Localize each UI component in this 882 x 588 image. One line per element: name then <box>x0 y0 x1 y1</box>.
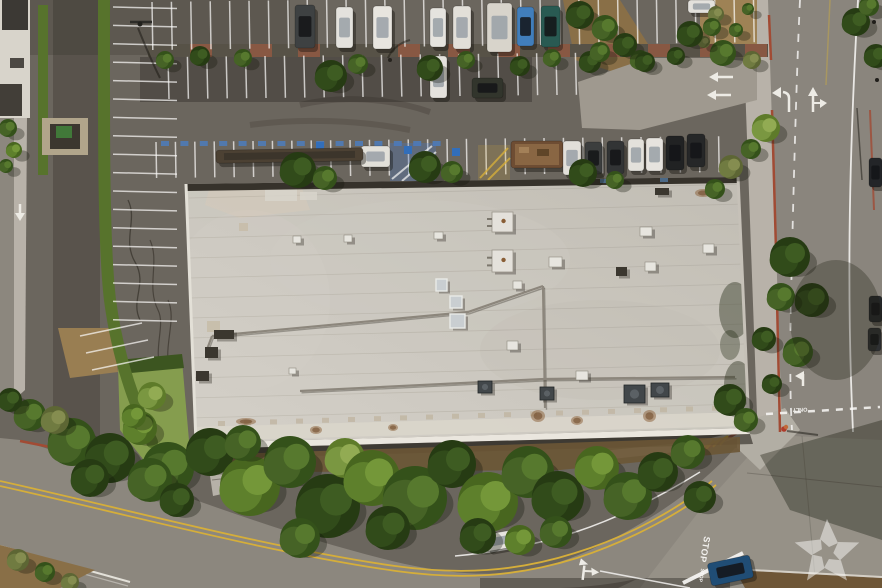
photo-tone-overlay <box>0 0 882 588</box>
aerial-photo-stage: STOP STOP ONLY <box>0 0 882 588</box>
aerial-photo: STOP STOP ONLY <box>0 0 882 588</box>
